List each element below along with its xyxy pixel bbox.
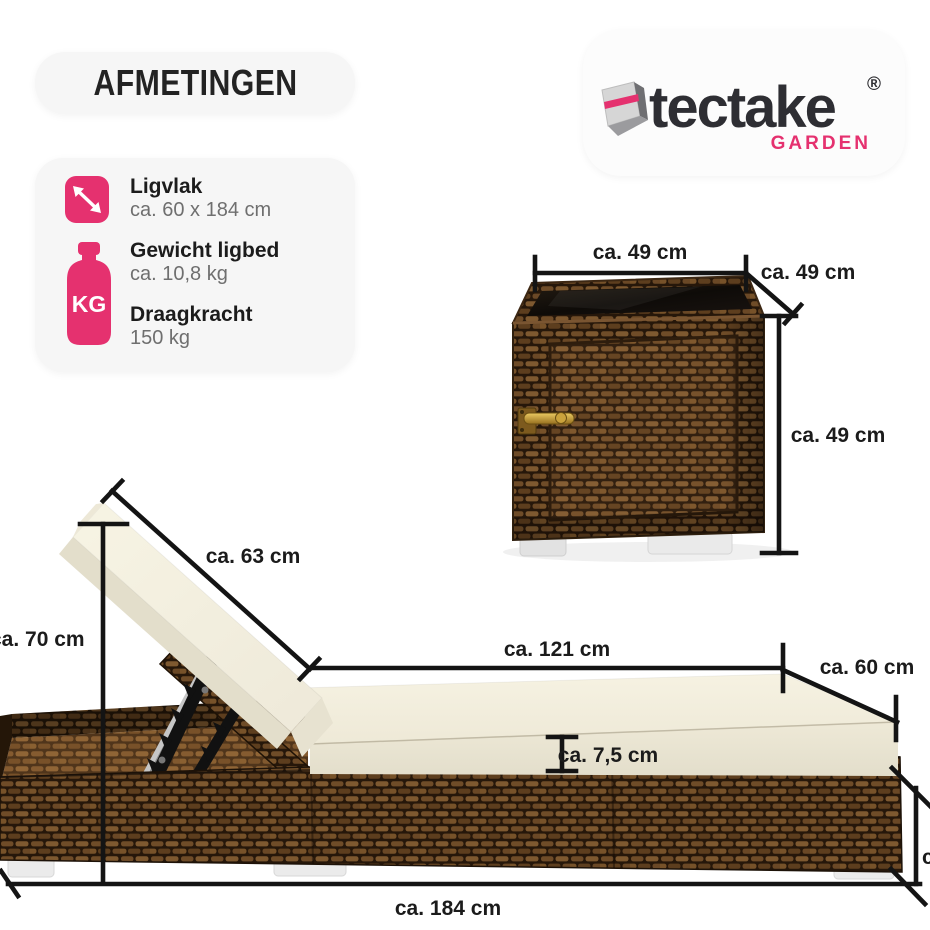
svg-text:KG: KG xyxy=(72,291,107,317)
spec-value-gewicht: ca. 10,8 kg xyxy=(130,263,228,286)
product-dimension-diagram: AFMETINGEN Ligvlak ca. 60 x 184 cm KG Ge… xyxy=(0,0,930,930)
spec-label-gewicht: Gewicht ligbed xyxy=(130,239,279,263)
registered-trademark-symbol: ® xyxy=(867,74,881,96)
dim-table-depth-label: ca. 49 cm xyxy=(761,261,856,285)
dim-table-width-label: ca. 49 cm xyxy=(593,241,688,265)
sun-lounger xyxy=(0,503,902,879)
spec-value-ligvlak: ca. 60 x 184 cm xyxy=(130,199,271,222)
dim-backrest-length-label: ca. 63 cm xyxy=(206,545,301,569)
weight-kg-icon: KG xyxy=(65,242,113,346)
dim-total-length-label: ca. 184 cm xyxy=(395,897,501,921)
dim-width-label: ca. 60 cm xyxy=(820,656,915,680)
brand-subline: GARDEN xyxy=(771,133,871,155)
dim-cushion-thickness-label: ca. 7,5 cm xyxy=(558,744,658,768)
dim-table-height-label: ca. 49 cm xyxy=(791,424,886,448)
spec-label-draagkracht: Draagkracht xyxy=(130,303,253,327)
brand-wordmark: tectake xyxy=(649,74,835,141)
page-title: AFMETINGEN xyxy=(93,62,297,104)
dim-flat-length-label: ca. 121 cm xyxy=(504,638,610,662)
side-table xyxy=(503,276,793,562)
spec-value-draagkracht: 150 kg xyxy=(130,327,190,350)
dim-right-edge-label-fragment: c xyxy=(922,846,930,870)
tectake-cube-logo-icon xyxy=(598,80,654,138)
diagonal-resize-arrow-icon xyxy=(65,176,109,223)
brand-logo-card: tectake ® GARDEN xyxy=(583,30,905,176)
spec-label-ligvlak: Ligvlak xyxy=(130,175,202,199)
spec-card: Ligvlak ca. 60 x 184 cm KG Gewicht ligbe… xyxy=(35,158,355,372)
dim-backrest-height-label: ca. 70 cm xyxy=(0,628,85,652)
table-right-shading xyxy=(513,316,764,540)
title-badge: AFMETINGEN xyxy=(35,52,355,114)
